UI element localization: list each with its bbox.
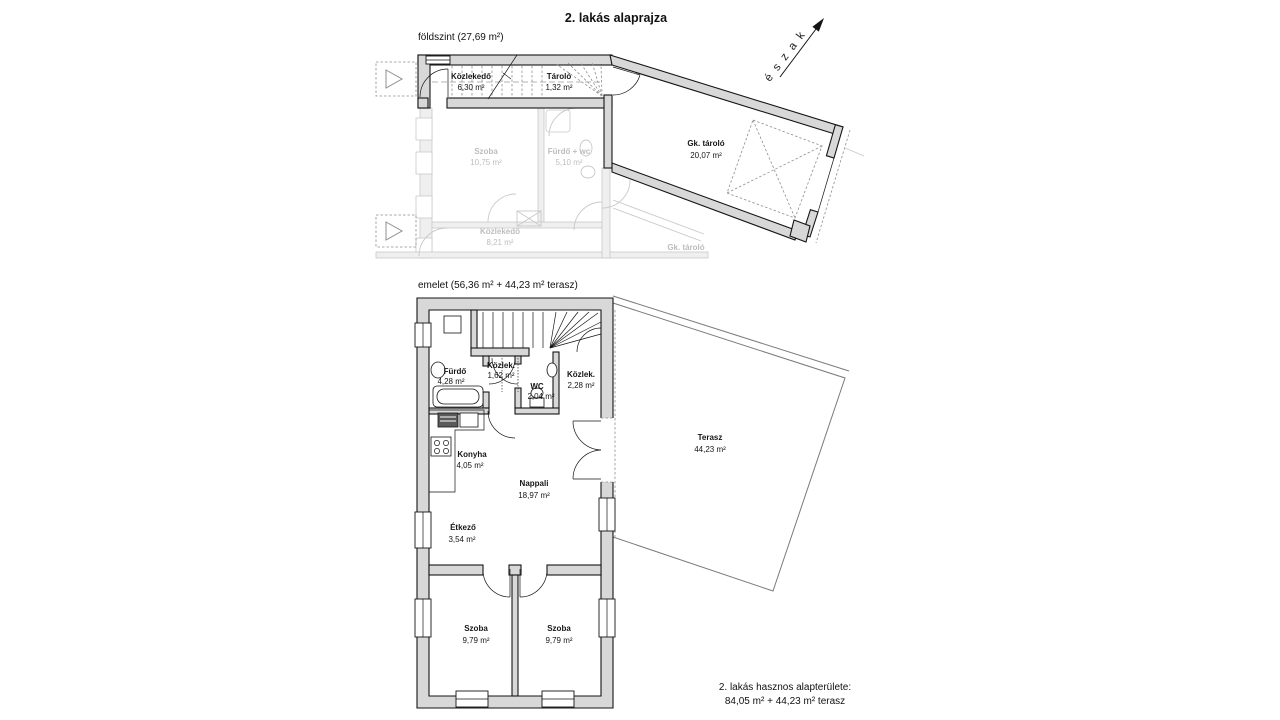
room-area-tarolo-gf: 1,32 m² — [545, 83, 572, 92]
north-arrow: é s z a k — [763, 18, 824, 84]
room-area-terasz: 44,23 m² — [694, 445, 726, 454]
page-title: 2. lakás alaprajza — [565, 11, 668, 25]
room-label-gk-tarolo: Gk. tároló — [687, 139, 724, 148]
room-label-furdo: Fürdő — [444, 367, 467, 376]
room-label-kozlekedo-gf: Közlekedő — [451, 72, 491, 81]
summary-line2: 84,05 m² + 44,23 m² terasz — [725, 696, 845, 707]
floor-plan-drawing: 2. lakás alaprajza földszint (27,69 m²) … — [0, 0, 1280, 720]
floor-plan-page: 2. lakás alaprajza földszint (27,69 m²) … — [0, 0, 1280, 720]
room-label-szoba-gf: Szoba — [474, 147, 498, 156]
summary-line1: 2. lakás hasznos alapterülete: — [719, 682, 851, 693]
summary-block: 2. lakás hasznos alapterülete: 84,05 m² … — [719, 682, 851, 707]
room-area-gk-tarolo: 20,07 m² — [690, 151, 722, 160]
upper-floor-plan: Fürdő 4,28 m² Közlek. 1,62 m² WC 2,04 m²… — [415, 298, 615, 708]
room-area-kozlek2: 2,28 m² — [567, 381, 594, 390]
room-label-szoba2: Szoba — [547, 624, 571, 633]
room-area-furdo-wc-gf: 5,10 m² — [555, 158, 582, 167]
room-area-etkezo: 3,54 m² — [448, 535, 475, 544]
room-area-kozlekedo-faded: 8,21 m² — [486, 238, 513, 247]
room-label-gk-tarolo-faded: Gk. tároló — [667, 243, 704, 252]
north-label: é s z a k — [763, 28, 809, 84]
ground-floor-plan: Közlekedő 6,30 m² Tároló 1,32 m² Gk. tár… — [376, 55, 864, 247]
entry-marker-top — [376, 62, 416, 96]
room-label-nappali: Nappali — [520, 479, 549, 488]
room-label-kozlekedo-faded: Közlekedő — [480, 227, 520, 236]
room-label-konyha: Konyha — [457, 450, 487, 459]
room-label-etkezo: Étkező — [450, 523, 476, 532]
room-label-kozlek1: Közlek. — [487, 361, 515, 370]
terrace: Terasz 44,23 m² — [613, 296, 849, 591]
room-label-furdo-wc-gf: Fürdő + wc — [548, 147, 591, 156]
room-area-kozlek1: 1,62 m² — [487, 371, 514, 380]
room-area-nappali: 18,97 m² — [518, 491, 550, 500]
room-area-kozlekedo-gf: 6,30 m² — [457, 83, 484, 92]
upper-stairs — [483, 312, 601, 352]
room-area-szoba-gf: 10,75 m² — [470, 158, 502, 167]
upper-floor-caption: emelet (56,36 m² + 44,23 m² terasz) — [418, 280, 578, 291]
room-area-konyha: 4,05 m² — [456, 461, 483, 470]
room-area-wc: 2,04 m² — [527, 392, 554, 401]
terrace-french-doors — [573, 418, 614, 482]
ground-floor-caption: földszint (27,69 m²) — [418, 32, 504, 43]
room-label-terasz: Terasz — [698, 433, 723, 442]
room-label-tarolo-gf: Tároló — [547, 72, 572, 81]
room-area-szoba1: 9,79 m² — [462, 636, 489, 645]
room-area-szoba2: 9,79 m² — [545, 636, 572, 645]
room-label-szoba1: Szoba — [464, 624, 488, 633]
room-label-wc: WC — [530, 382, 544, 391]
garage-parking-box — [727, 120, 822, 218]
room-label-kozlek2: Közlek. — [567, 370, 595, 379]
room-area-furdo: 4,28 m² — [437, 377, 464, 386]
entry-marker-bottom — [376, 215, 416, 247]
